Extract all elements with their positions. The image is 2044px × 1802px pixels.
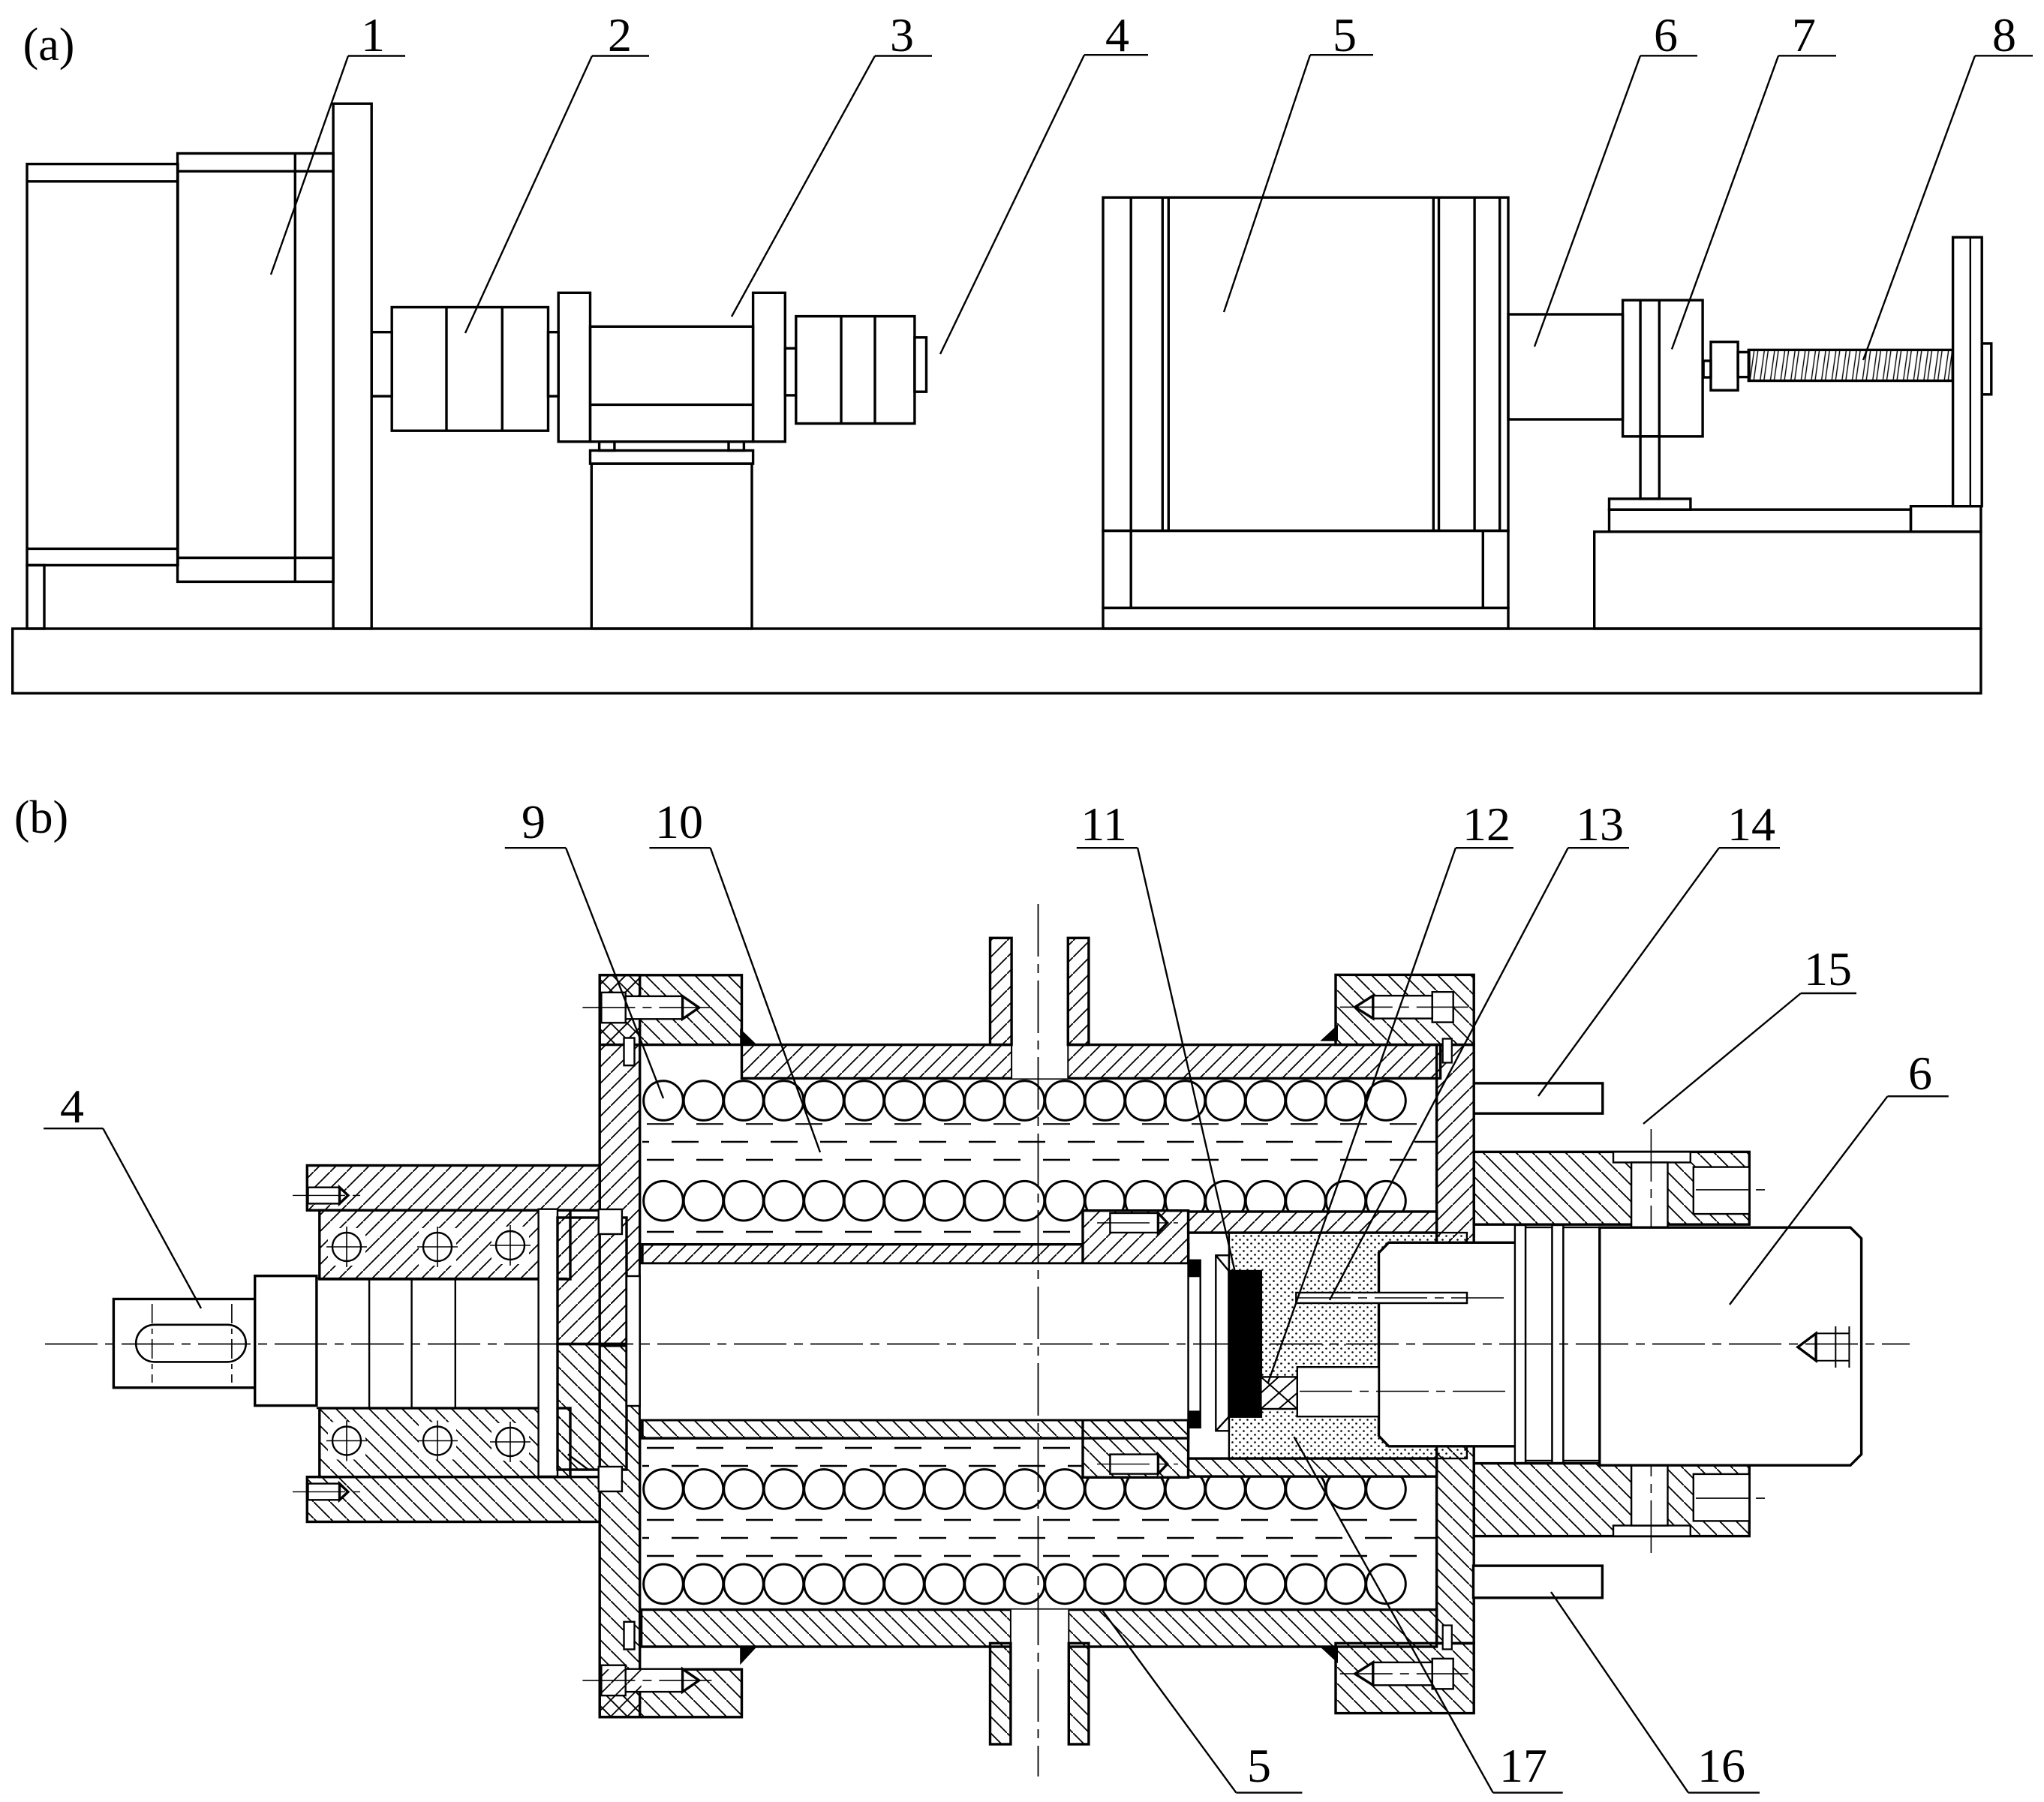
svg-text:6: 6: [1654, 8, 1678, 62]
svg-text:9: 9: [522, 795, 546, 848]
svg-text:3: 3: [890, 8, 914, 62]
svg-text:(b): (b): [14, 792, 68, 843]
svg-text:12: 12: [1462, 797, 1510, 851]
svg-text:11: 11: [1081, 797, 1127, 851]
svg-text:2: 2: [608, 8, 632, 62]
svg-text:17: 17: [1499, 1739, 1547, 1792]
svg-text:6: 6: [1908, 1047, 1932, 1100]
svg-text:16: 16: [1697, 1739, 1745, 1792]
svg-text:15: 15: [1804, 942, 1852, 996]
svg-text:8: 8: [1992, 8, 2016, 62]
svg-text:4: 4: [1105, 8, 1129, 62]
svg-text:(a): (a): [23, 20, 75, 71]
svg-text:4: 4: [60, 1080, 84, 1133]
svg-text:1: 1: [361, 8, 385, 62]
svg-text:5: 5: [1247, 1739, 1271, 1792]
svg-text:5: 5: [1333, 8, 1357, 62]
svg-text:10: 10: [655, 795, 703, 848]
svg-text:7: 7: [1792, 8, 1816, 62]
svg-text:14: 14: [1727, 797, 1775, 851]
svg-text:13: 13: [1576, 797, 1624, 851]
